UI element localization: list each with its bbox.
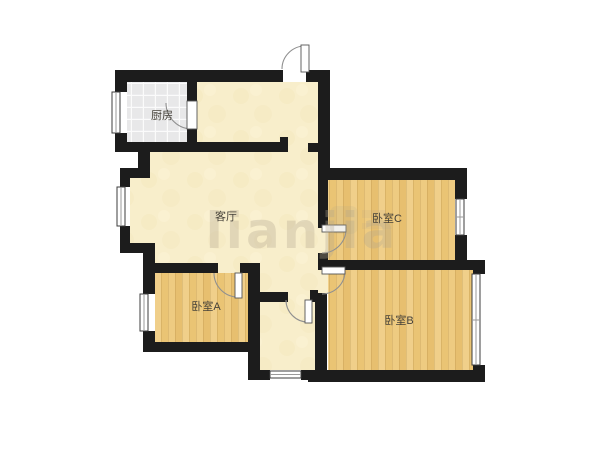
living-room-label: 客厅 xyxy=(215,209,237,223)
wall-segment xyxy=(455,235,467,262)
wall-segment xyxy=(240,263,260,273)
wall-segment xyxy=(120,243,155,253)
wall-segment xyxy=(143,263,218,273)
wall-segment xyxy=(120,168,150,178)
wall-segment xyxy=(315,293,327,380)
wall-segment xyxy=(187,82,197,102)
floor-plan: lianjia 厨房 客厅 卧室A 卧室B 卧室C xyxy=(0,0,600,450)
bedroom-a-door-leaf xyxy=(235,273,242,298)
bedroom-b-door-leaf xyxy=(322,267,345,274)
wall-segment xyxy=(318,70,330,180)
wall-segment xyxy=(473,260,485,274)
wall-segment xyxy=(280,137,288,152)
wall-segment xyxy=(143,342,260,352)
floor-plan-page: lianjia 厨房 客厅 卧室A 卧室B 卧室C xyxy=(0,0,600,450)
corridor-floor xyxy=(260,265,318,292)
kitchen-door-leaf xyxy=(187,101,197,129)
exterior-notch xyxy=(112,253,143,265)
wall-segment xyxy=(115,70,127,92)
wall-segment xyxy=(308,370,485,382)
bedroom-c-label: 卧室C xyxy=(372,211,402,225)
entrance-door-leaf xyxy=(301,45,309,72)
doorway-gap xyxy=(218,263,240,273)
wall-segment xyxy=(248,370,270,380)
wall-segment xyxy=(248,263,260,380)
wall-segment xyxy=(187,128,197,152)
wall-segment xyxy=(120,178,130,187)
bedroom-a-label: 卧室A xyxy=(191,299,221,313)
bedroom-b-label: 卧室B xyxy=(384,313,413,327)
bathroom-door-leaf xyxy=(305,300,312,323)
wall-segment xyxy=(115,70,283,82)
wall-jamb xyxy=(308,143,318,152)
kitchen-label: 厨房 xyxy=(151,109,173,122)
wall-segment xyxy=(318,168,467,180)
watermark-logo xyxy=(330,206,358,234)
wall-segment xyxy=(143,253,155,294)
wall-segment xyxy=(455,168,467,199)
exterior-notch xyxy=(110,152,138,168)
wall-segment xyxy=(301,370,327,380)
wall-jamb xyxy=(261,143,267,148)
wall-segment xyxy=(256,292,288,302)
